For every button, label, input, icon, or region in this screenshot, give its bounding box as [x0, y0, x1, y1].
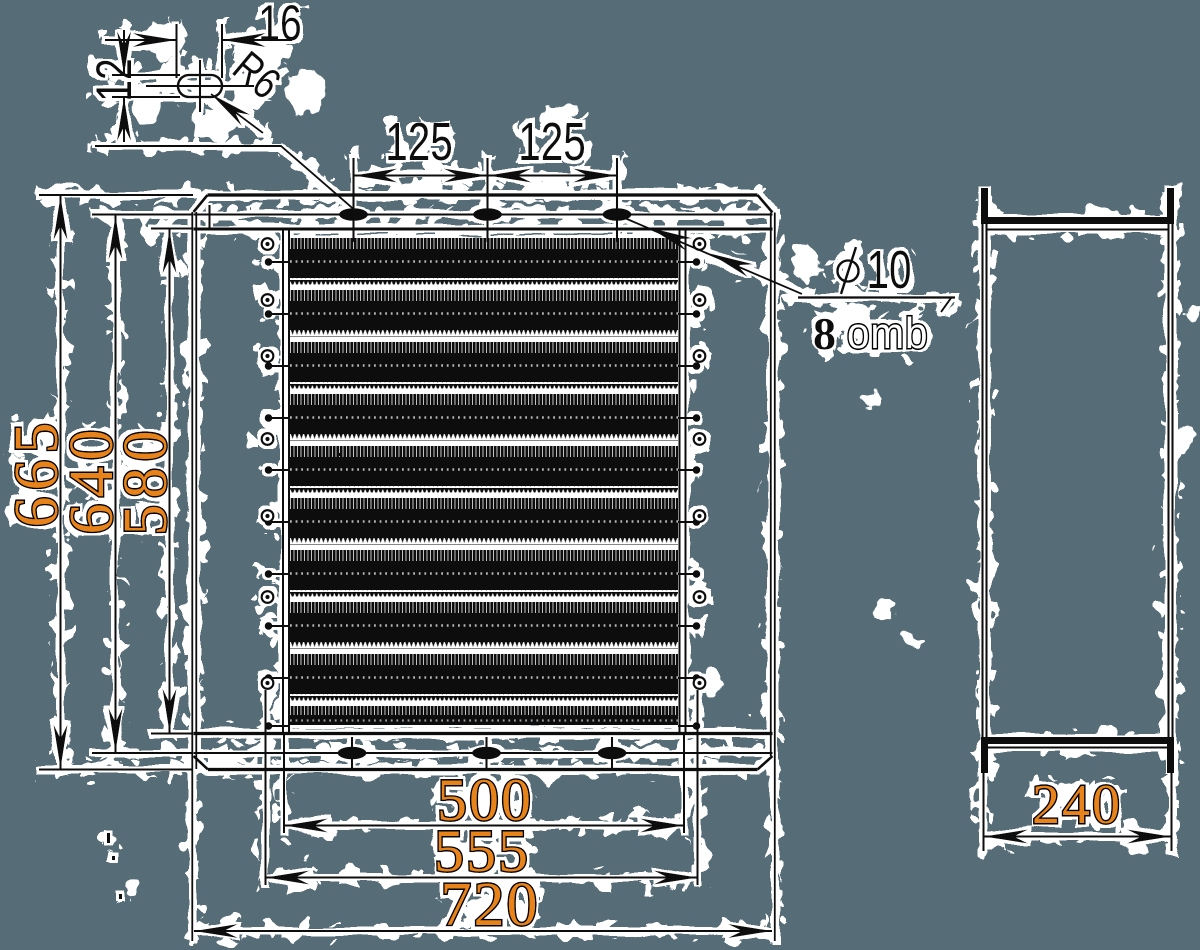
svg-text:8: 8	[813, 308, 836, 359]
svg-text:omb: omb	[847, 308, 928, 357]
svg-text:125: 125	[385, 112, 453, 172]
svg-text:720: 720	[441, 871, 540, 939]
svg-text:12: 12	[85, 58, 142, 101]
svg-text:10: 10	[866, 240, 911, 300]
svg-text:125: 125	[518, 112, 586, 172]
svg-text:16: 16	[258, 0, 301, 51]
svg-text:240: 240	[1032, 774, 1122, 836]
svg-text:580: 580	[112, 425, 180, 536]
